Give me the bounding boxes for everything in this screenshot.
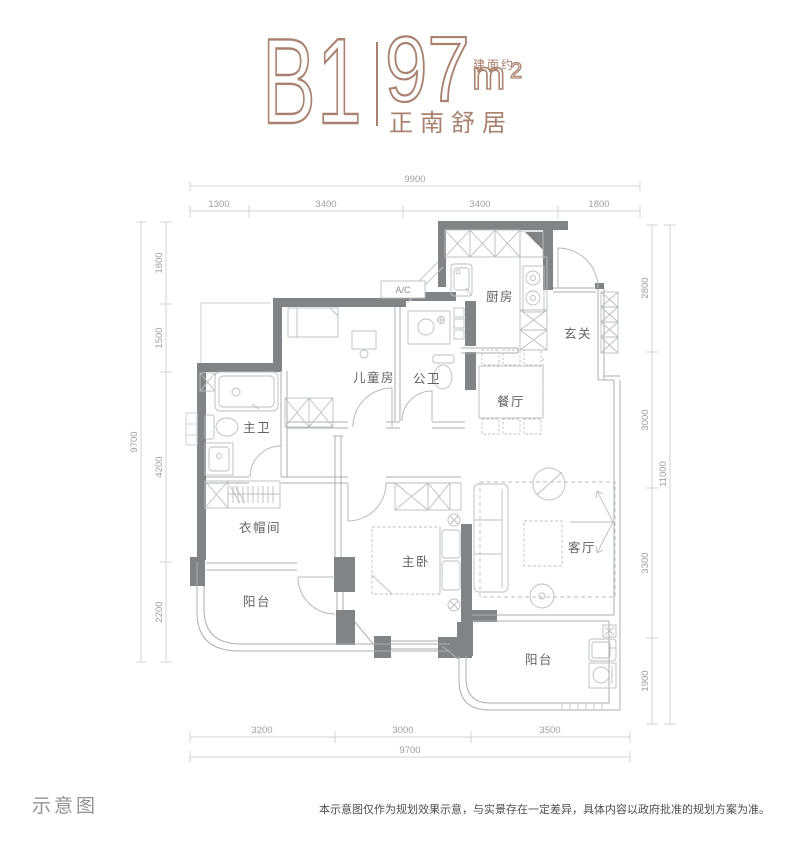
balcony-appliances (589, 625, 616, 688)
room-label-cloakroom: 衣帽间 (239, 520, 281, 535)
dim-bottom-seg1: 3000 (392, 725, 413, 736)
room-label-dining: 餐厅 (497, 394, 525, 409)
dimension-lines (136, 181, 676, 763)
dim-right-seg0: 2800 (640, 277, 651, 298)
floorplan-page: B1 97 建面约 m 2 正南舒居 9900 1300 3400 3400 (0, 0, 800, 844)
master-bedroom-furniture (372, 483, 461, 611)
dim-left-seg0: 1800 (154, 252, 165, 273)
room-labels: 厨房 玄关 餐厅 儿童房 公卫 主卫 衣帽间 阳台 主卧 客厅 阳台 (239, 289, 596, 667)
dim-right-seg1: 3000 (640, 409, 651, 430)
ac-label: A/C (395, 285, 411, 295)
room-label-kitchen: 厨房 (486, 289, 514, 304)
dim-bottom-seg0: 3200 (251, 725, 272, 736)
dim-right-seg3: 1900 (640, 670, 651, 691)
room-label-entry: 玄关 (564, 326, 592, 341)
dining-furniture (479, 350, 543, 434)
living-room-furniture (474, 468, 615, 608)
room-label-balcony-left: 阳台 (243, 594, 271, 609)
dim-left-seg3: 2200 (154, 601, 165, 622)
dim-left-seg1: 1500 (154, 327, 165, 348)
thin-walls-windows (186, 262, 620, 710)
dim-top-seg0: 1300 (208, 199, 229, 210)
dim-top-seg2: 3400 (469, 199, 490, 210)
dim-right-seg2: 3300 (640, 552, 651, 573)
dim-bottom-total: 9700 (399, 745, 420, 756)
room-label-living: 客厅 (568, 540, 596, 555)
dim-left-seg2: 4200 (154, 456, 165, 477)
dim-top-total: 9900 (404, 174, 425, 185)
ac-label-box: A/C (381, 281, 425, 298)
dim-left-total: 9700 (129, 431, 140, 452)
room-label-guest-bath: 公卫 (413, 372, 441, 386)
kids-room-furniture (285, 308, 376, 427)
room-label-master-bath: 主卫 (243, 421, 271, 435)
dim-top-seg3: 1800 (588, 199, 609, 210)
entry-fixtures (543, 292, 618, 417)
cloakroom-closet (205, 481, 280, 508)
disclaimer-text: 本示意图仅作为规划效果示意，与实景存在一定差异，具体内容以政府批准的规划方案为准… (319, 801, 770, 817)
dim-right-total: 11000 (658, 461, 669, 487)
dim-bottom-seg2: 3500 (539, 725, 560, 736)
floorplan-canvas: 9900 1300 3400 3400 1800 9700 1800 1500 … (0, 0, 800, 844)
dim-top-seg1: 3400 (315, 199, 336, 210)
room-label-master-bedroom: 主卧 (402, 555, 430, 569)
room-label-kids-room: 儿童房 (353, 370, 395, 385)
room-label-balcony-bottom: 阳台 (525, 652, 553, 667)
caption-label: 示意图 (32, 791, 98, 818)
